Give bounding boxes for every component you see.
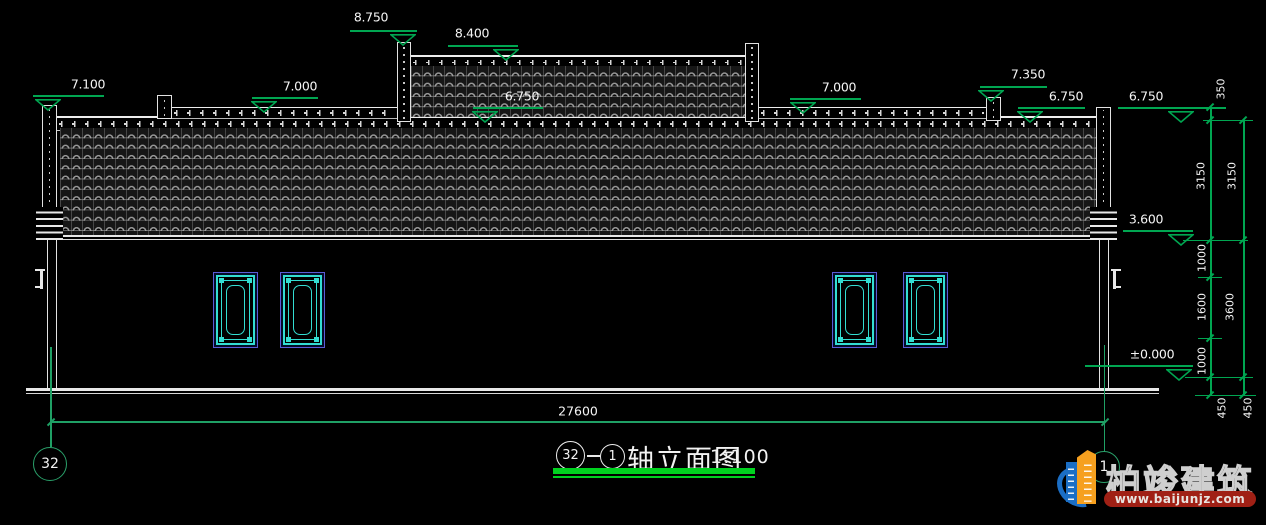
dimension-value: 450 — [1216, 398, 1229, 419]
elevation-drawing-canvas: 8.7508.4007.1007.0006.7507.0007.3506.750… — [0, 0, 1266, 525]
elevation-triangle-icon — [1168, 108, 1194, 120]
clerestory-roof-tiles — [411, 66, 745, 117]
title-axis-bubble-end: 1 — [600, 444, 625, 469]
bottom-dimension-line — [51, 421, 1105, 423]
elevation-value: 6.750 — [1049, 89, 1083, 104]
ground-line-lower — [26, 393, 1159, 395]
bottom-dimension-value: 27600 — [554, 404, 602, 419]
elevation-value: 8.400 — [455, 26, 489, 41]
dimension-value: 350 — [1215, 79, 1228, 100]
dimension-value: 3600 — [1224, 293, 1237, 321]
elevation-value: ±0.000 — [1130, 347, 1174, 362]
elevation-value: 6.750 — [505, 89, 539, 104]
right-axis-line — [1104, 345, 1106, 452]
dimension-chain-line — [1243, 120, 1245, 395]
elevation-value: 8.750 — [354, 10, 388, 25]
dimension-extension-line — [1185, 377, 1253, 378]
dimension-extension-line — [1198, 277, 1222, 278]
clerestory-left-pillar — [397, 42, 411, 122]
elevation-triangle-icon — [472, 108, 498, 120]
left-pillar-capital — [36, 207, 63, 240]
clerestory-right-pillar — [745, 43, 759, 122]
dimension-value: 1600 — [1196, 293, 1209, 321]
elevation-value: 6.750 — [1129, 89, 1163, 104]
left-eave-post — [157, 95, 172, 119]
elevation-value: 7.000 — [822, 80, 856, 95]
window — [903, 272, 948, 348]
title-axis-bubble-start: 32 — [556, 441, 585, 470]
right-pillar-capital — [1090, 207, 1117, 240]
title-underline-thin — [553, 476, 755, 478]
dimension-value: 3150 — [1195, 162, 1208, 190]
axis-bubble-left: 32 — [33, 447, 67, 481]
elevation-triangle-icon — [35, 96, 61, 108]
window — [832, 272, 877, 348]
dimension-value: 1000 — [1196, 244, 1209, 272]
title-underline-thick — [553, 468, 755, 474]
window — [213, 272, 258, 348]
dimension-extension-line — [1203, 120, 1253, 121]
elevation-triangle-icon — [978, 87, 1004, 99]
dimension-extension-line — [1195, 395, 1256, 396]
elevation-value: 7.000 — [283, 79, 317, 94]
elevation-value: 3.600 — [1129, 212, 1163, 227]
left-corner-column — [47, 240, 57, 389]
dimension-value: 1000 — [1196, 347, 1209, 375]
elevation-triangle-icon — [1017, 108, 1043, 120]
elevation-value: 7.350 — [1011, 67, 1045, 82]
dimension-value: 450 — [1242, 398, 1255, 419]
dimension-extension-line — [1183, 240, 1248, 241]
left-axis-line — [50, 347, 52, 447]
dimension-extension-line — [1198, 338, 1222, 339]
left-parapet-band — [172, 107, 397, 119]
elevation-triangle-icon — [390, 31, 416, 43]
main-roof-tiles — [60, 128, 1097, 235]
window — [280, 272, 325, 348]
logo-orange-tower-icon — [1077, 450, 1096, 504]
elevation-triangle-icon — [790, 99, 816, 111]
title-scale: 1:100 — [710, 446, 770, 468]
dimension-chain-line — [1210, 107, 1212, 395]
title-axis-dash — [587, 455, 600, 457]
logo-blue-tower-icon — [1066, 462, 1077, 502]
right-wall-bracket — [1113, 286, 1121, 288]
roof-bottom-edge-upper — [57, 235, 1103, 237]
elevation-triangle-icon — [493, 46, 519, 58]
elevation-value: 7.100 — [71, 77, 105, 92]
ground-line-upper — [26, 388, 1159, 391]
left-wall-bracket — [35, 286, 43, 288]
dimension-value: 3150 — [1226, 162, 1239, 190]
logo-url-text: www.baijunjz.com — [1104, 491, 1256, 507]
roof-bottom-edge-lower — [57, 239, 1103, 240]
elevation-triangle-icon — [251, 98, 277, 110]
